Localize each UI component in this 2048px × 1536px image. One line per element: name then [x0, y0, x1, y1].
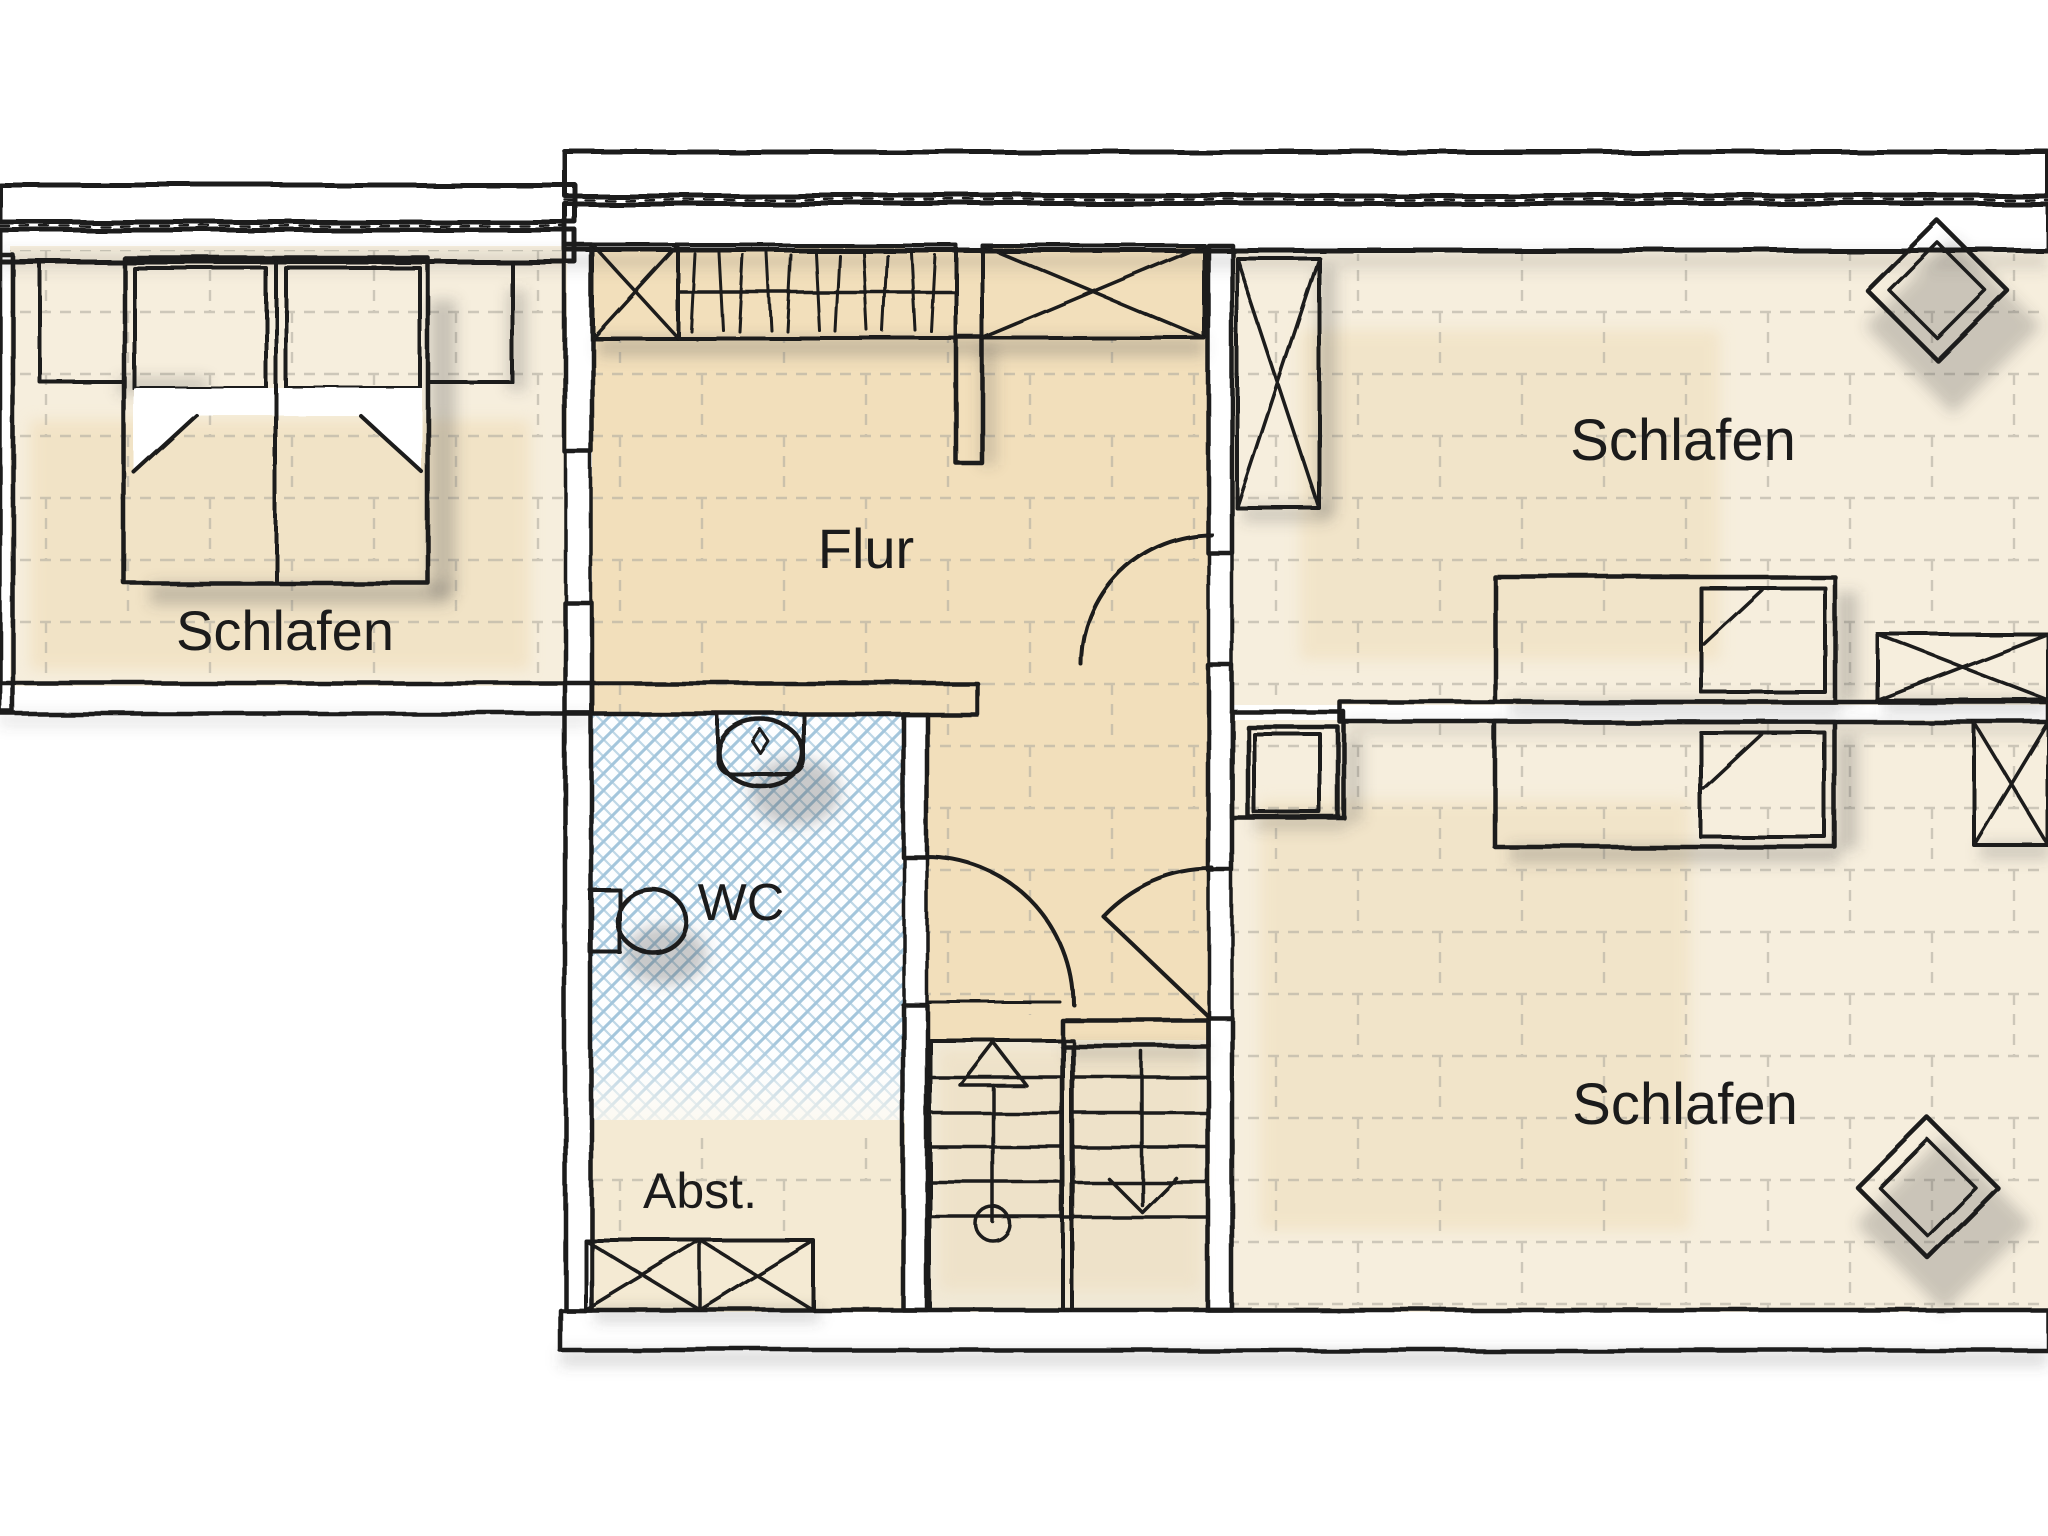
label-hallway: Flur	[818, 517, 914, 580]
floor-plan-canvas: Schlafen Flur WC Abst. Schlafen Schlafen	[0, 0, 2048, 1536]
label-wc: WC	[698, 874, 785, 932]
label-bedroom-bottom-right: Schlafen	[1572, 1072, 1798, 1137]
label-bedroom-left: Schlafen	[176, 599, 394, 662]
label-bedroom-top-right: Schlafen	[1570, 408, 1796, 473]
floor-plan: Schlafen Flur WC Abst. Schlafen Schlafen	[0, 0, 2048, 1536]
label-storage: Abst.	[643, 1163, 757, 1219]
